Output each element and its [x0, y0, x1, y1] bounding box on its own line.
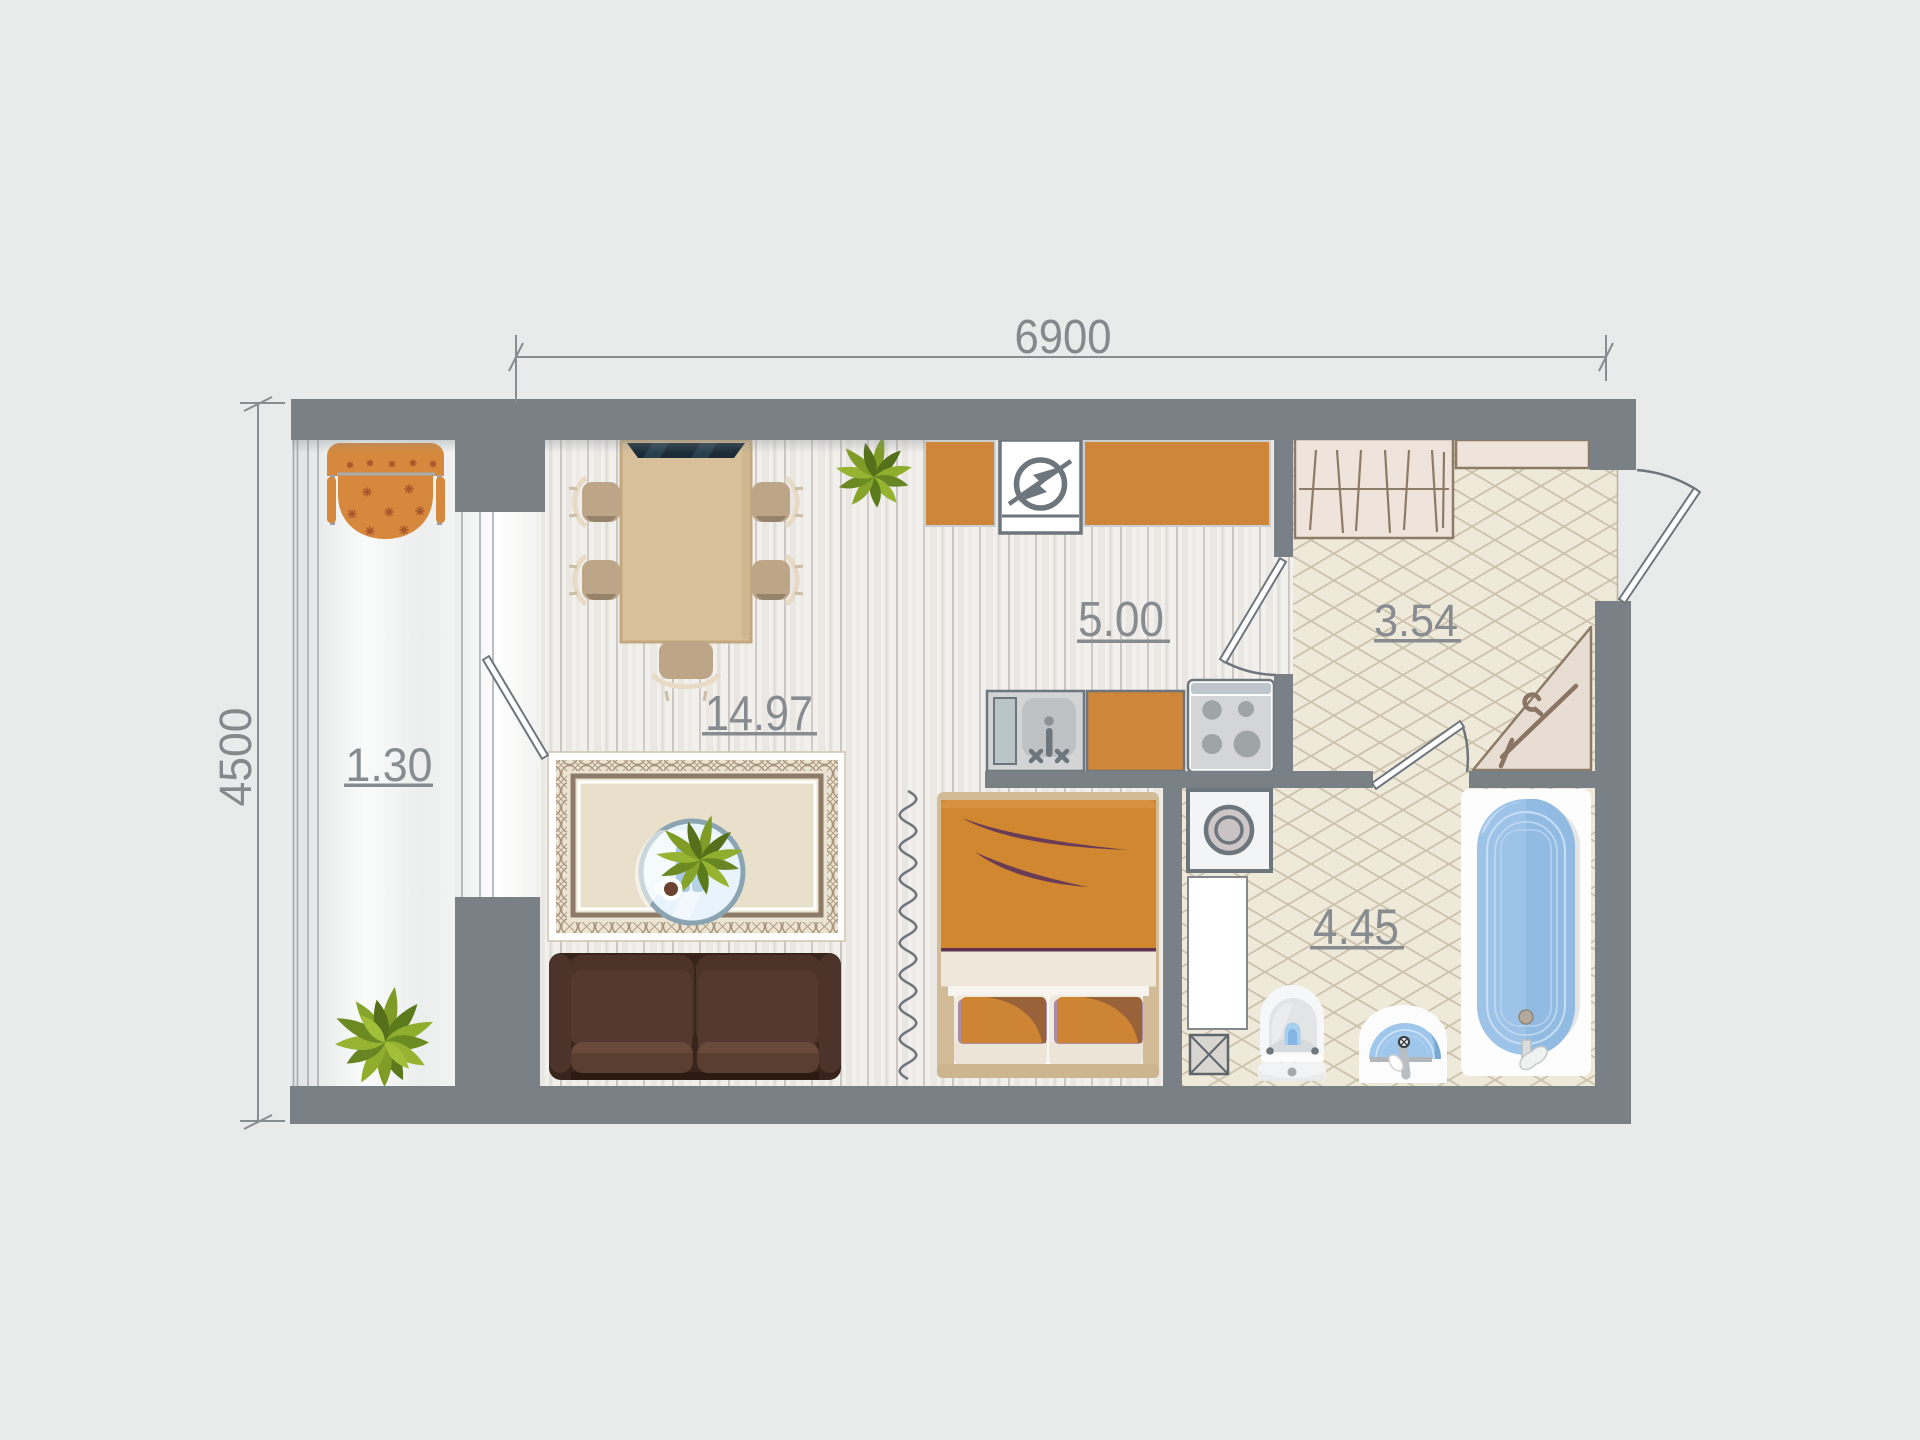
svg-text:4500: 4500 — [210, 708, 261, 807]
svg-text:3.54: 3.54 — [1374, 595, 1458, 646]
svg-text:5.00: 5.00 — [1078, 593, 1164, 647]
svg-text:1.30: 1.30 — [346, 738, 433, 791]
svg-text:6900: 6900 — [1015, 311, 1112, 364]
